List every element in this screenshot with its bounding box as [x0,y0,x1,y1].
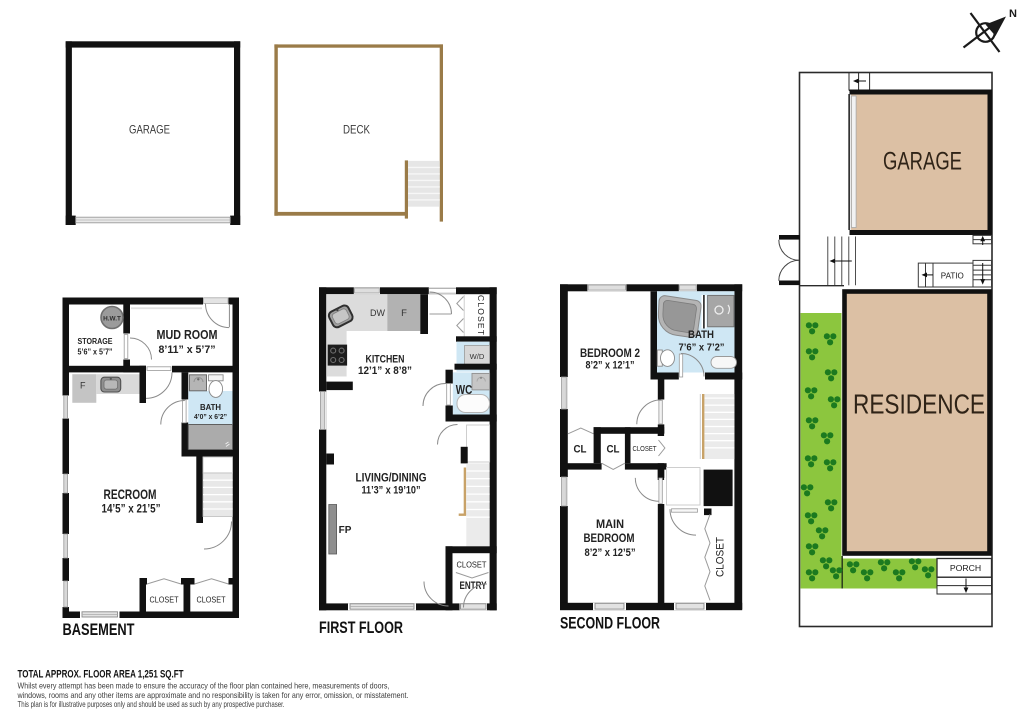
svg-text:RECROOM: RECROOM [104,487,157,502]
svg-text:CLOSET: CLOSET [150,596,179,605]
svg-text:8’2” x 12’5”: 8’2” x 12’5” [585,547,636,559]
svg-text:BASEMENT: BASEMENT [63,621,135,639]
svg-text:BATH: BATH [688,329,714,341]
svg-text:ENTRY: ENTRY [460,580,488,592]
svg-text:GARAGE: GARAGE [883,148,962,176]
svg-text:FP: FP [339,525,352,536]
svg-text:BEDROOM: BEDROOM [584,531,635,545]
svg-text:CL: CL [574,444,587,456]
svg-text:7’6” x 7’2”: 7’6” x 7’2” [679,343,725,354]
svg-text:MAIN: MAIN [596,517,624,531]
svg-text:KITCHEN: KITCHEN [366,354,405,366]
svg-text:N: N [1009,8,1017,20]
svg-text:CLOSET: CLOSET [715,537,727,577]
svg-text:11’3” x 19’10”: 11’3” x 19’10” [362,485,421,497]
svg-text:PATIO: PATIO [941,272,964,281]
svg-text:F: F [401,308,407,319]
svg-text:BATH: BATH [200,403,221,412]
svg-text:DW: DW [370,308,385,318]
svg-text:CLOSET: CLOSET [457,560,488,570]
svg-text:WC: WC [456,383,473,397]
svg-text:DECK: DECK [343,123,371,137]
svg-text:PORCH: PORCH [950,563,981,573]
svg-text:14’5” x 21’5”: 14’5” x 21’5” [102,502,161,516]
svg-text:TOTAL APPROX. FLOOR AREA 1,251: TOTAL APPROX. FLOOR AREA 1,251 SQ.FT [18,669,184,681]
svg-text:GARAGE: GARAGE [129,123,170,137]
svg-text:SECOND FLOOR: SECOND FLOOR [560,615,660,633]
svg-text:STORAGE: STORAGE [78,336,113,346]
svg-text:This plan is for illustrative: This plan is for illustrative purposes o… [18,699,285,709]
svg-text:CL: CL [607,444,620,456]
svg-text:8’2” x 12’1”: 8’2” x 12’1” [586,360,635,372]
svg-text:8’11” x 5’7”: 8’11” x 5’7” [159,344,216,356]
svg-text:CLOSET: CLOSET [633,444,657,453]
svg-text:5’6” x 5’7”: 5’6” x 5’7” [78,348,113,357]
svg-text:CLOSET: CLOSET [197,596,226,605]
svg-text:4’0” x 6’2”: 4’0” x 6’2” [194,412,227,421]
svg-text:H.W.T: H.W.T [103,315,121,322]
svg-text:RESIDENCE: RESIDENCE [853,389,985,420]
svg-text:MUD ROOM: MUD ROOM [157,328,218,342]
svg-text:BEDROOM 2: BEDROOM 2 [580,346,640,360]
svg-text:12’1” x 8’8”: 12’1” x 8’8” [358,365,412,377]
svg-text:W/D: W/D [470,352,485,361]
svg-text:F: F [80,381,86,391]
svg-text:FIRST FLOOR: FIRST FLOOR [319,619,403,637]
svg-text:LIVING/DINING: LIVING/DINING [356,471,427,485]
